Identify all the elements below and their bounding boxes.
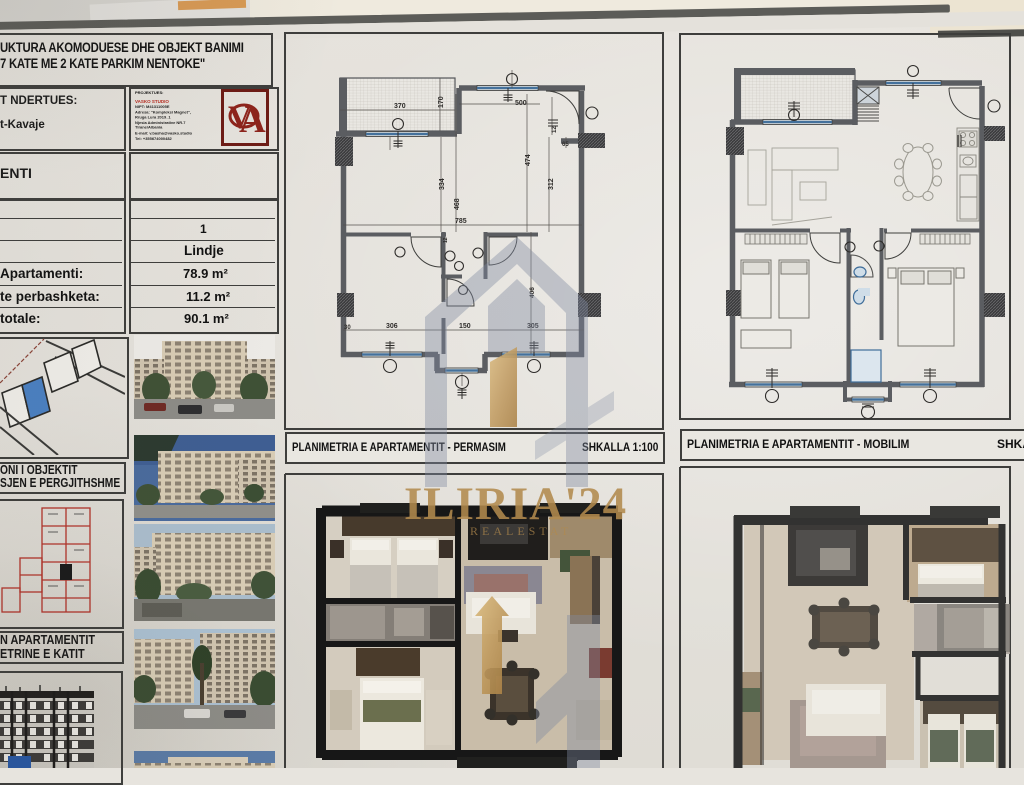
svg-text:12: 12 [552,126,558,133]
svg-text:150: 150 [459,323,471,330]
svg-text:A: A [239,100,266,141]
svg-text:12: 12 [443,237,449,243]
svg-text:785: 785 [455,218,467,225]
svg-text:306: 306 [386,323,398,330]
svg-text:305: 305 [527,323,539,330]
svg-text:334: 334 [439,178,446,190]
svg-text:170: 170 [438,96,445,108]
svg-text:65: 65 [562,142,569,148]
svg-text:406: 406 [529,287,536,298]
svg-text:370: 370 [394,103,406,110]
svg-text:468: 468 [454,198,461,210]
svg-text:312: 312 [548,178,555,190]
svg-text:30: 30 [344,325,351,331]
svg-text:474: 474 [525,154,532,166]
svg-text:500: 500 [515,100,527,107]
